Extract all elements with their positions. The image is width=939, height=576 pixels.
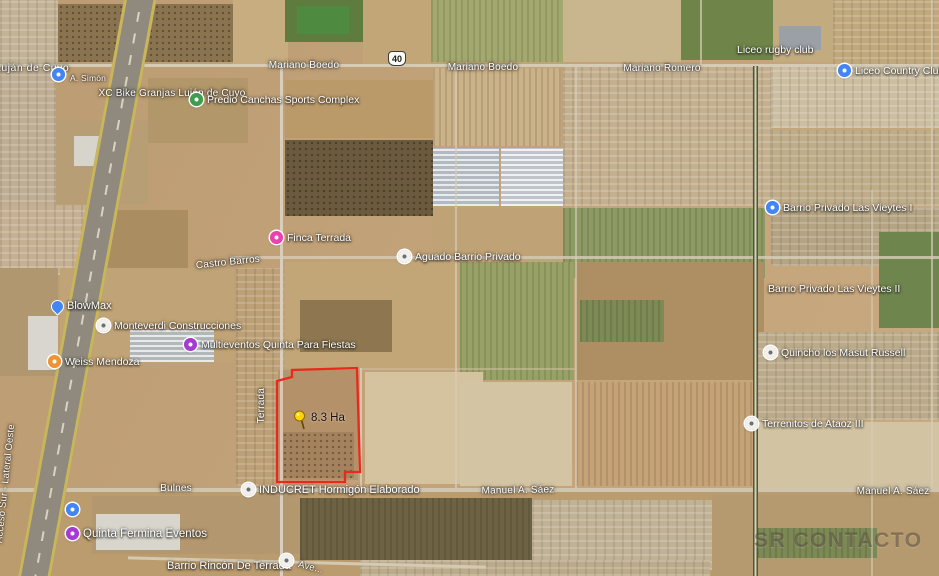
poi-quinta-fermina[interactable]: Quinta Fermina Eventos — [66, 527, 207, 540]
terrain-patch — [879, 232, 939, 328]
street-label-a-simon: A. Simón — [70, 73, 106, 83]
watermark: SR CONTACTO — [754, 529, 923, 553]
poi-blue-icon[interactable] — [66, 503, 79, 516]
poi-label: Quincho los Masut Russell — [781, 347, 905, 359]
poi-liceo-country-club[interactable]: Liceo Country Club — [838, 64, 939, 77]
road-vertical — [455, 66, 457, 488]
poi-label: INDUCRET Hormigón Elaborado — [259, 484, 420, 496]
terrain-patch — [833, 0, 939, 66]
poi-finca-terrada[interactable]: Finca Terrada — [270, 231, 351, 244]
neighborhood-icon[interactable] — [280, 554, 293, 567]
terrain-patch — [0, 0, 58, 66]
poi-las-vieytes-1[interactable]: Barrio Privado Las Vieytes I — [766, 201, 912, 214]
gated-community-icon[interactable] — [766, 201, 779, 214]
poi-barrio-rincon[interactable]: Barrio Rincón De Terrada — [167, 560, 291, 572]
route-shield-40: 40 — [388, 51, 406, 66]
road-vertical — [575, 66, 577, 488]
poi-predio-sports[interactable]: Predio Canchas Sports Complex — [190, 93, 359, 106]
construction-company-icon[interactable] — [97, 319, 110, 332]
terrain-patch — [757, 422, 939, 488]
street-label-bulnes: Bulnes — [160, 483, 192, 494]
poi-label: Terrenitos de Ataoz III — [762, 418, 864, 430]
land-lots-icon[interactable] — [745, 417, 758, 430]
poi-terrenitos[interactable]: Terrenitos de Ataoz III — [745, 417, 864, 430]
poi-label: Barrio Privado Las Vieytes I — [783, 202, 912, 214]
road-terrada — [280, 66, 283, 576]
satellite-map[interactable]: 8.3 Ha 40 Luján de Cuyo A. Simón Mariano… — [0, 0, 939, 576]
road-track-polygon-east — [360, 368, 362, 488]
area-measurement-label: 8.3 Ha — [311, 412, 345, 424]
road-vertical — [871, 190, 873, 576]
poi-label: Aguado Barrio Privado — [415, 251, 521, 263]
poi-monteverdi[interactable]: Monteverdi Construcciones — [97, 319, 241, 332]
poi-weiss-mendoza[interactable]: Weiss Mendoza — [48, 355, 140, 368]
poi-label: Liceo rugby club — [737, 44, 813, 56]
terrain-patch — [771, 130, 939, 206]
poi-liceo-rugby-club[interactable]: Liceo rugby club — [737, 44, 813, 56]
store-icon[interactable] — [48, 355, 61, 368]
terrain-patch — [576, 382, 762, 486]
terrain-patch — [282, 432, 354, 478]
poi-aguado-barrio-privado[interactable]: Aguado Barrio Privado — [398, 250, 521, 263]
road-vertical — [700, 0, 702, 66]
pushpin-icon[interactable] — [291, 409, 311, 431]
poi-label: Liceo Country Club — [855, 65, 939, 77]
poi-quincho-russell[interactable]: Quincho los Masut Russell — [764, 346, 905, 359]
street-label-mariano-romero: Mariano Romero — [623, 63, 700, 74]
country-club-icon[interactable] — [838, 64, 851, 77]
road-field-track — [360, 368, 575, 370]
street-label-terrada: Terrada — [256, 388, 267, 423]
poi-label: Barrio Privado Las Vieytes II — [768, 283, 900, 295]
terrain-patch — [460, 262, 574, 380]
poi-label: Quinta Fermina Eventos — [83, 528, 207, 540]
street-label-manuel-a-saez-1: Manuel A. Sáez — [481, 484, 554, 496]
terrain-patch — [563, 0, 681, 62]
terrain-patch — [297, 6, 349, 34]
road-manuel-a-saez — [0, 488, 939, 492]
poi-label: Predio Canchas Sports Complex — [207, 94, 359, 106]
concrete-plant-icon[interactable] — [242, 483, 255, 496]
poi-label: BlowMax — [67, 300, 112, 312]
terrain-patch — [563, 66, 771, 206]
poi-blowmax[interactable]: BlowMax — [52, 300, 112, 312]
terrain-patch — [233, 0, 288, 66]
terrain-patch — [360, 560, 710, 576]
terrain-patch — [460, 382, 572, 486]
sports-complex-icon[interactable] — [190, 93, 203, 106]
poi-label: Multieventos Quinta Para Fiestas — [201, 339, 356, 351]
terrain-patch — [580, 300, 664, 342]
poi-multieventos[interactable]: Multieventos Quinta Para Fiestas — [184, 338, 356, 351]
road-tree-lined — [753, 66, 758, 576]
poi-label: Monteverdi Construcciones — [114, 320, 241, 332]
street-label-manuel-a-saez-2: Manuel A. Sáez — [857, 486, 930, 497]
terrain-patch — [433, 148, 499, 206]
poi-inducret[interactable]: INDUCRET Hormigón Elaborado — [242, 483, 420, 496]
street-label-mariano-boedo-1: Mariano Boedo — [269, 60, 339, 71]
finca-icon[interactable] — [270, 231, 283, 244]
quincho-icon[interactable] — [764, 346, 777, 359]
transit-stop-icon[interactable] — [52, 68, 65, 81]
poi-las-vieytes-2[interactable]: Barrio Privado Las Vieytes II — [768, 283, 900, 295]
gated-community-icon[interactable] — [398, 250, 411, 263]
terrain-patch — [285, 140, 433, 216]
poi-label: Weiss Mendoza — [65, 356, 140, 368]
terrain-patch — [501, 148, 563, 206]
street-label-mariano-boedo-2: Mariano Boedo — [448, 62, 518, 73]
events-venue-icon[interactable] — [66, 527, 79, 540]
poi-label: Barrio Rincón De Terrada — [167, 560, 291, 572]
terrain-patch — [433, 68, 561, 146]
terrain-patch — [300, 498, 532, 560]
map-pin-icon[interactable] — [50, 298, 66, 314]
road-aguado — [230, 256, 939, 259]
terrain-patch — [431, 0, 563, 62]
terrain-patch — [236, 268, 284, 486]
poi-label: Finca Terrada — [287, 232, 351, 244]
events-venue-icon[interactable] — [184, 338, 197, 351]
terrain-patch — [285, 80, 433, 138]
